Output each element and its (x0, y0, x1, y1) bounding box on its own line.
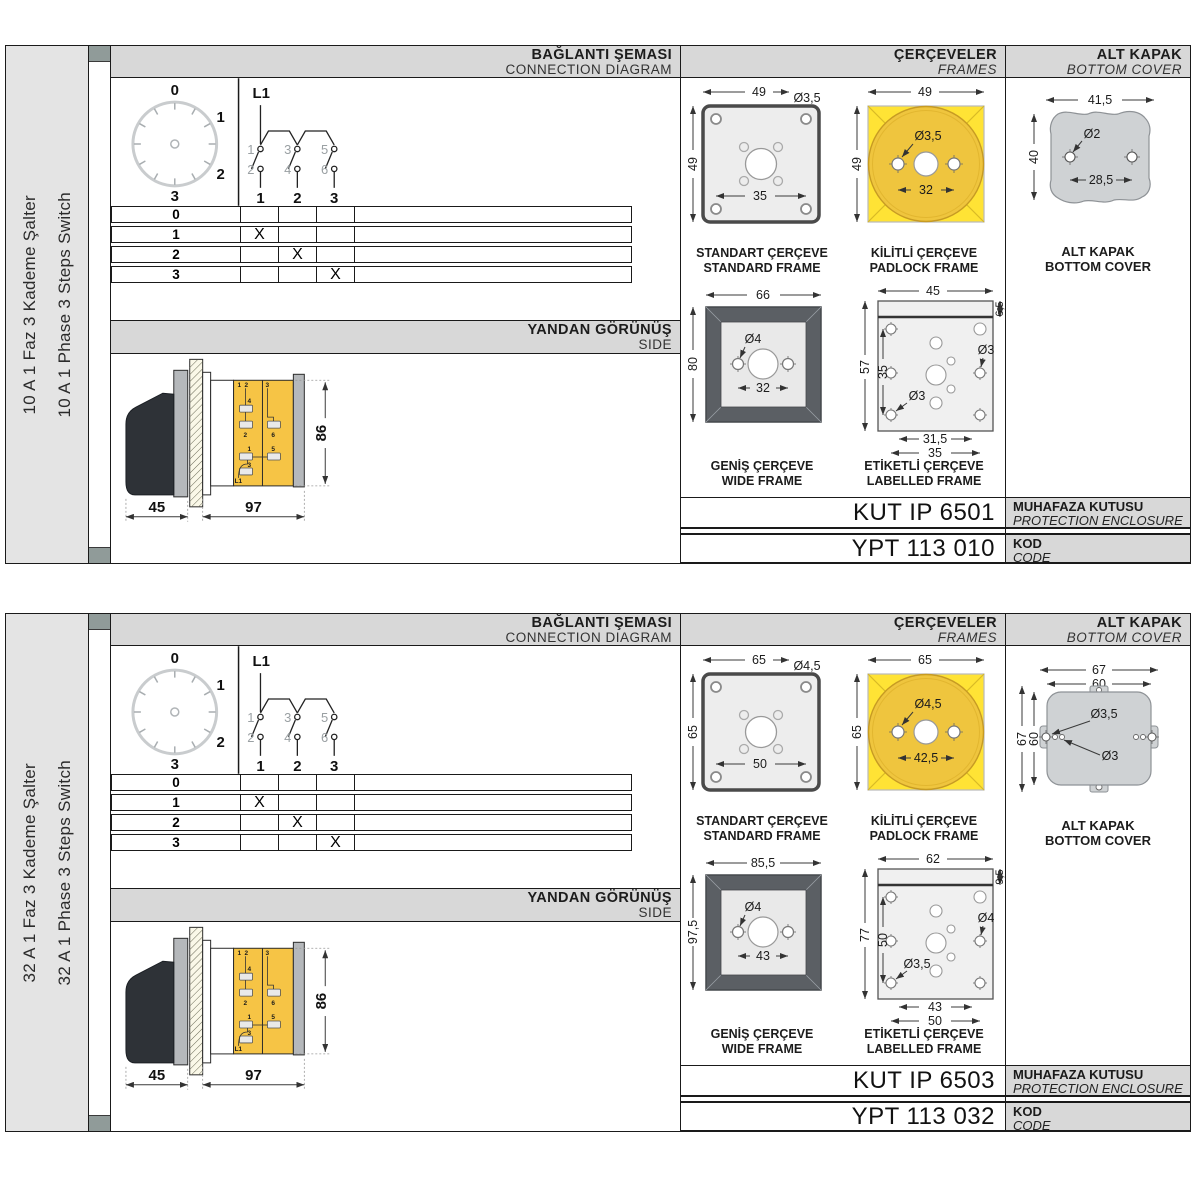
table-empty-cell (355, 266, 632, 283)
connection-header: BAĞLANTI ŞEMASI CONNECTION DIAGRAM (111, 614, 680, 646)
enclosure-label-en: PROTECTION ENCLOSURE (1013, 514, 1190, 528)
wide-frame-label-tr: GENİŞ ÇERÇEVE (711, 1027, 814, 1042)
labelled-dim-strip: 9,5 (994, 869, 1005, 884)
connection-header-tr: BAĞLANTI ŞEMASI (111, 48, 672, 63)
padlock-frame-drawing: 65 Ø4,5 42, (843, 646, 1005, 814)
sideview-terminal-label: 3 (265, 382, 269, 389)
contact-5: 5 (321, 710, 328, 725)
registration-mark-top (89, 46, 110, 62)
contact-4: 4 (284, 730, 291, 745)
contact-2: 2 (247, 162, 254, 177)
table-empty-cell (355, 226, 632, 243)
contact-mark-cell: X (279, 246, 317, 263)
wide-frame-drawing: 66 Ø4 32 (681, 281, 843, 459)
standard-dim-width: 49 (752, 85, 766, 99)
terminal-1: 1 (256, 758, 264, 774)
sideview-header-en: SIDE (111, 338, 672, 352)
labelled-frame-label-tr: ETİKETLİ ÇERÇEVE (864, 1027, 983, 1042)
labelled-dia-bl: Ø3 (909, 389, 926, 403)
table-empty-cell (355, 774, 632, 791)
wide-frame-drawing: 85,5 Ø4 43 (681, 849, 843, 1027)
contact-mark-cell (317, 794, 355, 811)
frames-column: ÇERÇEVELER FRAMES 49 Ø3,5 (681, 46, 1006, 563)
sideview-terminal-label: 4 (248, 398, 252, 405)
padlock-dim-height: 49 (850, 157, 864, 171)
table-empty-cell (355, 794, 632, 811)
connection-header-tr: BAĞLANTI ŞEMASI (111, 616, 672, 631)
labelled-dim-width: 62 (926, 852, 940, 866)
wide-frame-label-en: WIDE FRAME (722, 474, 803, 489)
cover-header-tr: ALT KAPAK (1006, 48, 1182, 63)
contact-mark-cell (279, 206, 317, 223)
connection-diagram-drawing: 0 1 2 3 L1 (111, 646, 679, 774)
sideview-terminal-label: 6 (271, 432, 275, 439)
contact-mark-cell (241, 774, 279, 791)
bottom-cover-drawing: 67 60 Ø3,5 Ø3 67 (1006, 660, 1189, 810)
standard-frame-label-en: STANDARD FRAME (703, 261, 820, 276)
switching-table: 0 1 X 2 X 3 (111, 774, 632, 854)
sideview-feed-label: L1 (235, 1046, 243, 1053)
switch-side-drawing: 1 2 3 4 2 1 3 6 5 L1 86 45 97 (126, 359, 330, 521)
cover-dia-label: Ø2 (1084, 127, 1101, 141)
cover-caption-en: BOTTOM COVER (1006, 259, 1190, 274)
contact-mark-cell: X (317, 266, 355, 283)
code-label-tr: KOD (1013, 1104, 1190, 1119)
sideview-dim-handle: 45 (149, 1067, 166, 1084)
padlock-dim-width: 65 (918, 653, 932, 667)
sideview-terminal-label: 1 (248, 1014, 252, 1021)
terminal-2: 2 (293, 758, 301, 774)
contact-2: 2 (247, 730, 254, 745)
sideview-terminal-label: 4 (248, 966, 252, 973)
cover-header: ALT KAPAK BOTTOM COVER (1006, 614, 1190, 646)
standard-dim-inner: 35 (753, 189, 767, 203)
code-label-cell: KOD CODE (1006, 1101, 1190, 1131)
connection-header: BAĞLANTI ŞEMASI CONNECTION DIAGRAM (111, 46, 680, 78)
labelled-dim-inner-left: 35 (876, 365, 890, 379)
contact-mark-cell: X (279, 814, 317, 831)
product-title-tr: 10 A 1 Faz 3 Kademe Şalter (20, 195, 40, 415)
table-row: 2 X (111, 246, 632, 263)
sideview-feed-label: L1 (235, 478, 243, 485)
standard-dim-height: 49 (686, 157, 700, 171)
contact-mark-cell: X (241, 794, 279, 811)
wide-dim-inner: 32 (756, 381, 770, 395)
switch-side-drawing: 1 2 3 4 2 1 3 6 5 L1 86 45 97 (126, 927, 330, 1089)
cover-header-en: BOTTOM COVER (1006, 631, 1182, 645)
standard-frame-drawing: 49 Ø3,5 35 (681, 78, 843, 246)
enclosure-code: KUT IP 6501 (681, 497, 1005, 529)
table-empty-cell (355, 206, 632, 223)
wide-frame-label-tr: GENİŞ ÇERÇEVE (711, 459, 814, 474)
product-sidebar: 32 A 1 Faz 3 Kademe Şalter 32 A 1 Phase … (6, 614, 89, 1131)
table-empty-cell (355, 246, 632, 263)
step-label-cell: 0 (111, 774, 241, 791)
bottom-cover-drawing: 41,5 Ø2 28,5 40 (1006, 86, 1189, 236)
sideview-terminal-label: 1 (238, 382, 242, 389)
frames-header-tr: ÇERÇEVELER (681, 616, 997, 631)
step-label-cell: 2 (111, 246, 241, 263)
step-label-cell: 2 (111, 814, 241, 831)
standard-frame-drawing: 65 Ø4,5 50 (681, 646, 843, 814)
terminal-2: 2 (293, 190, 301, 206)
contact-mark-cell (317, 246, 355, 263)
enclosure-code: KUT IP 6503 (681, 1065, 1005, 1097)
contact-mark-cell (241, 206, 279, 223)
dial-position-1: 1 (216, 109, 224, 126)
labelled-frame-label-en: LABELLED FRAME (867, 474, 982, 489)
product-code: YPT 113 010 (681, 533, 1005, 563)
frames-header: ÇERÇEVELER FRAMES (681, 614, 1005, 646)
step-label-cell: 3 (111, 834, 241, 851)
labelled-dim-width: 45 (926, 284, 940, 298)
labelled-dia-bl: Ø3,5 (903, 957, 930, 971)
product-code: YPT 113 032 (681, 1101, 1005, 1131)
labelled-dim-b2: 35 (928, 446, 942, 459)
frames-header-tr: ÇERÇEVELER (681, 48, 997, 63)
labelled-frame-cell: 62 9,5 (843, 849, 1005, 1057)
dial-position-1: 1 (216, 677, 224, 694)
sideview-drawing: 1 2 3 4 2 1 3 6 5 L1 86 45 97 (111, 354, 679, 563)
sideview-terminal-label: 6 (271, 1000, 275, 1007)
product-sidebar: 10 A 1 Faz 3 Kademe Şalter 10 A 1 Phase … (6, 46, 89, 563)
labelled-dim-strip: 6,5 (994, 301, 1005, 316)
enclosure-label-cell: MUHAFAZA KUTUSU PROTECTION ENCLOSURE (1006, 1065, 1190, 1097)
sideview-header: YANDAN GÖRÜNÜŞ SIDE (111, 320, 680, 354)
labelled-dim-height: 77 (858, 928, 872, 942)
padlock-frame-label-tr: KİLİTLİ ÇERÇEVE (871, 814, 977, 829)
contact-mark-cell: X (241, 226, 279, 243)
wide-dim-width: 85,5 (751, 856, 775, 870)
table-row: 3 X (111, 834, 632, 851)
padlock-frame-label-en: PADLOCK FRAME (870, 829, 979, 844)
feed-label: L1 (253, 85, 270, 102)
contact-mark-cell (241, 814, 279, 831)
standard-frame-label-tr: STANDART ÇERÇEVE (696, 814, 828, 829)
standard-frame-label-en: STANDARD FRAME (703, 829, 820, 844)
sideview-drawing: 1 2 3 4 2 1 3 6 5 L1 86 45 97 (111, 922, 679, 1131)
connection-column: BAĞLANTI ŞEMASI CONNECTION DIAGRAM (111, 46, 681, 563)
sideview-terminal-label: 2 (245, 950, 249, 957)
table-row: 1 X (111, 794, 632, 811)
sideview-terminal-label: 5 (271, 446, 275, 453)
enclosure-label-tr: MUHAFAZA KUTUSU (1013, 499, 1190, 514)
labelled-dim-inner-left: 50 (876, 933, 890, 947)
contact-6: 6 (321, 730, 328, 745)
table-row: 3 X (111, 266, 632, 283)
cover-caption-tr: ALT KAPAK (1006, 244, 1190, 259)
frames-header: ÇERÇEVELER FRAMES (681, 46, 1005, 78)
switching-table: 0 1 X 2 X 3 (111, 206, 632, 286)
contact-mark-cell: X (317, 834, 355, 851)
contact-schematic-drawing: L1 1 2 3 4 5 6 (247, 85, 338, 206)
standard-dim-width: 65 (752, 653, 766, 667)
wide-dim-width: 66 (756, 288, 770, 302)
contact-mark-cell (241, 266, 279, 283)
cover-dim-width: 41,5 (1088, 93, 1112, 107)
wide-dia-label: Ø4 (745, 332, 762, 346)
contact-mark-cell (317, 206, 355, 223)
labelled-frame-cell: 45 6,5 (843, 281, 1005, 489)
sideview-dim-body: 97 (245, 1067, 262, 1084)
labelled-dim-height: 57 (858, 360, 872, 374)
wide-frame-label-en: WIDE FRAME (722, 1042, 803, 1057)
contact-3: 3 (284, 710, 291, 725)
cover-dim-width: 67 (1092, 663, 1106, 677)
product-section: 10 A 1 Faz 3 Kademe Şalter 10 A 1 Phase … (5, 45, 1191, 564)
cover-header-tr: ALT KAPAK (1006, 616, 1182, 631)
binding-strip (89, 46, 111, 563)
connection-column: BAĞLANTI ŞEMASI CONNECTION DIAGRAM (111, 614, 681, 1131)
padlock-dim-width: 49 (918, 85, 932, 99)
cover-header-en: BOTTOM COVER (1006, 63, 1182, 77)
rotary-dial-drawing: 0 1 2 3 (133, 82, 225, 205)
dial-position-2: 2 (216, 734, 224, 751)
wide-dim-height: 80 (686, 357, 700, 371)
code-label-en: CODE (1013, 551, 1190, 565)
registration-mark-bottom (89, 1115, 110, 1131)
code-label-tr: KOD (1013, 536, 1190, 551)
contact-1: 1 (247, 710, 254, 725)
contact-mark-cell (279, 226, 317, 243)
wide-frame-cell: 66 Ø4 32 (681, 281, 843, 489)
sideview-terminal-label: 3 (248, 1030, 252, 1037)
step-label-cell: 3 (111, 266, 241, 283)
binding-strip (89, 614, 111, 1131)
sideview-dim-body: 97 (245, 499, 262, 516)
connection-diagram-drawing: 0 1 2 3 L1 (111, 78, 679, 206)
labelled-frame-drawing: 45 6,5 (843, 281, 1005, 459)
sideview-header: YANDAN GÖRÜNÜŞ SIDE (111, 888, 680, 922)
table-row: 0 (111, 206, 632, 223)
cover-dia-label: Ø3,5 (1090, 707, 1117, 721)
cover-column: ALT KAPAK BOTTOM COVER 41,5 Ø2 28,5 40 A… (1006, 46, 1190, 563)
standard-dia-label: Ø3,5 (793, 91, 820, 105)
enclosure-label-cell: MUHAFAZA KUTUSU PROTECTION ENCLOSURE (1006, 497, 1190, 529)
sideview-terminal-label: 1 (238, 950, 242, 957)
rotary-dial-drawing: 0 1 2 3 (133, 650, 225, 773)
sideview-header-en: SIDE (111, 906, 672, 920)
padlock-dim-inner: 42,5 (914, 751, 938, 765)
labelled-dim-b1: 31,5 (923, 432, 947, 446)
registration-mark-bottom (89, 547, 110, 563)
step-label-cell: 1 (111, 794, 241, 811)
standard-frame-cell: 65 Ø4,5 50 (681, 646, 843, 849)
padlock-frame-label-tr: KİLİTLİ ÇERÇEVE (871, 246, 977, 261)
labelled-dia-tr: Ø3 (978, 343, 995, 357)
step-label-cell: 0 (111, 206, 241, 223)
table-empty-cell (355, 814, 632, 831)
padlock-dim-height: 65 (850, 725, 864, 739)
frames-column: ÇERÇEVELER FRAMES 65 Ø4,5 (681, 614, 1006, 1131)
dial-position-3: 3 (171, 756, 179, 773)
sideview-terminal-label: 2 (244, 432, 248, 439)
cover-dim-height2: 60 (1027, 732, 1041, 746)
contact-mark-cell (279, 834, 317, 851)
cover-caption-en: BOTTOM COVER (1006, 833, 1190, 848)
cover-column: ALT KAPAK BOTTOM COVER 67 60 (1006, 614, 1190, 1131)
contact-mark-cell (241, 834, 279, 851)
contact-mark-cell (241, 246, 279, 263)
terminal-3: 3 (330, 190, 338, 206)
sideview-header-tr: YANDAN GÖRÜNÜŞ (111, 323, 672, 338)
cover-dim-inner: 28,5 (1089, 173, 1113, 187)
enclosure-label-en: PROTECTION ENCLOSURE (1013, 1082, 1190, 1096)
connection-header-en: CONNECTION DIAGRAM (111, 63, 672, 77)
table-row: 0 (111, 774, 632, 791)
cover-header: ALT KAPAK BOTTOM COVER (1006, 46, 1190, 78)
sideview-dim-height: 86 (313, 425, 330, 442)
standard-dim-height: 65 (686, 725, 700, 739)
table-row: 2 X (111, 814, 632, 831)
padlock-frame-cell: 65 Ø4,5 42, (843, 646, 1005, 849)
labelled-frame-label-tr: ETİKETLİ ÇERÇEVE (864, 459, 983, 474)
standard-frame-cell: 49 Ø3,5 35 (681, 78, 843, 281)
dial-position-0: 0 (171, 650, 179, 667)
product-section: 32 A 1 Faz 3 Kademe Şalter 32 A 1 Phase … (5, 613, 1191, 1132)
registration-mark-top (89, 614, 110, 630)
contact-3: 3 (284, 142, 291, 157)
labelled-frame-label-en: LABELLED FRAME (867, 1042, 982, 1057)
dial-position-3: 3 (171, 188, 179, 205)
contact-mark-cell (279, 266, 317, 283)
contact-mark-cell (279, 794, 317, 811)
dial-position-0: 0 (171, 82, 179, 99)
padlock-frame-label-en: PADLOCK FRAME (870, 261, 979, 276)
cover-dia2-label: Ø3 (1102, 749, 1119, 763)
dial-position-2: 2 (216, 166, 224, 183)
padlock-dim-inner: 32 (919, 183, 933, 197)
contact-6: 6 (321, 162, 328, 177)
padlock-dia-label: Ø4,5 (914, 697, 941, 711)
wide-dia-label: Ø4 (745, 900, 762, 914)
contact-mark-cell (317, 814, 355, 831)
terminal-3: 3 (330, 758, 338, 774)
product-title-tr: 32 A 1 Faz 3 Kademe Şalter (20, 763, 40, 983)
standard-dim-inner: 50 (753, 757, 767, 771)
contact-mark-cell (279, 774, 317, 791)
frames-header-en: FRAMES (681, 631, 997, 645)
sideview-terminal-label: 2 (244, 1000, 248, 1007)
sideview-terminal-label: 5 (271, 1014, 275, 1021)
product-title-en: 10 A 1 Phase 3 Steps Switch (55, 192, 75, 417)
cover-dim-height: 40 (1027, 150, 1041, 164)
contact-mark-cell (317, 226, 355, 243)
standard-dia-label: Ø4,5 (793, 659, 820, 673)
contact-schematic-drawing: L1 1 2 3 4 5 6 (247, 653, 338, 774)
table-row: 1 X (111, 226, 632, 243)
enclosure-label-tr: MUHAFAZA KUTUSU (1013, 1067, 1190, 1082)
sideview-dim-height: 86 (313, 993, 330, 1010)
wide-dim-height: 97,5 (686, 920, 700, 944)
connection-header-en: CONNECTION DIAGRAM (111, 631, 672, 645)
contact-mark-cell (317, 774, 355, 791)
standard-frame-label-tr: STANDART ÇERÇEVE (696, 246, 828, 261)
contact-4: 4 (284, 162, 291, 177)
sideview-terminal-label: 3 (265, 950, 269, 957)
step-label-cell: 1 (111, 226, 241, 243)
labelled-dia-tr: Ø4 (978, 911, 995, 925)
product-title-en: 32 A 1 Phase 3 Steps Switch (55, 760, 75, 985)
terminal-1: 1 (256, 190, 264, 206)
feed-label: L1 (253, 653, 270, 670)
sideview-terminal-label: 2 (245, 382, 249, 389)
wide-dim-inner: 43 (756, 949, 770, 963)
labelled-dim-b2: 50 (928, 1014, 942, 1027)
cover-caption-tr: ALT KAPAK (1006, 818, 1190, 833)
sideview-terminal-label: 1 (248, 446, 252, 453)
sideview-terminal-label: 3 (248, 462, 252, 469)
padlock-frame-drawing: 49 Ø3,5 32 (843, 78, 1005, 246)
sideview-dim-handle: 45 (149, 499, 166, 516)
code-label-en: CODE (1013, 1119, 1190, 1133)
table-empty-cell (355, 834, 632, 851)
contact-1: 1 (247, 142, 254, 157)
padlock-dia-label: Ø3,5 (914, 129, 941, 143)
padlock-frame-cell: 49 Ø3,5 32 (843, 78, 1005, 281)
code-label-cell: KOD CODE (1006, 533, 1190, 563)
sideview-header-tr: YANDAN GÖRÜNÜŞ (111, 891, 672, 906)
wide-frame-cell: 85,5 Ø4 43 (681, 849, 843, 1057)
labelled-frame-drawing: 62 9,5 (843, 849, 1005, 1027)
labelled-dim-b1: 43 (928, 1000, 942, 1014)
frames-header-en: FRAMES (681, 63, 997, 77)
contact-5: 5 (321, 142, 328, 157)
